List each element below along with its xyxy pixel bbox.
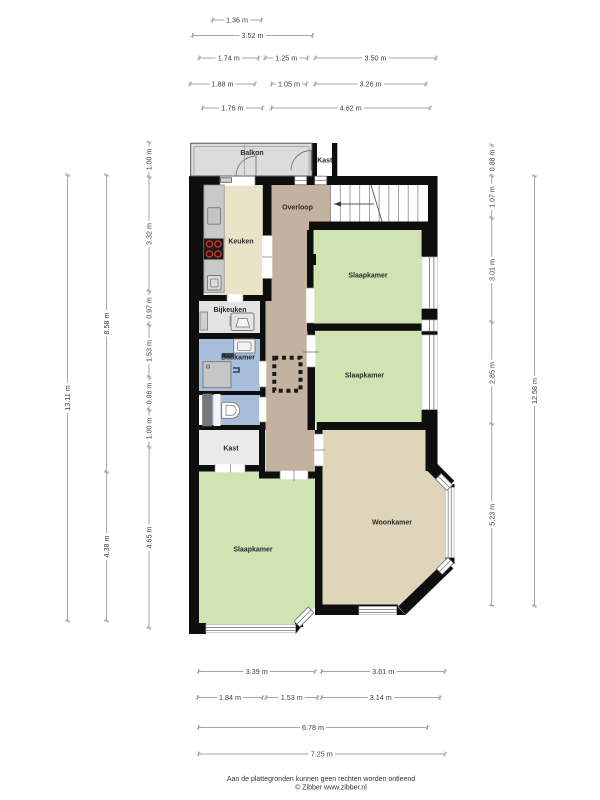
svg-text:0.97 m: 0.97 m [147,297,154,319]
svg-text:1.07 m: 1.07 m [489,186,496,208]
svg-text:3.39 m: 3.39 m [246,667,268,676]
svg-text:12.58 m: 12.58 m [530,378,539,404]
svg-text:1.36 m: 1.36 m [226,16,248,25]
svg-text:2.85 m: 2.85 m [487,362,496,384]
svg-text:1.00 m: 1.00 m [147,149,154,171]
svg-text:0.96 m: 0.96 m [147,383,154,405]
svg-text:1.00 m: 1.00 m [147,418,154,440]
svg-text:Kast: Kast [317,158,333,165]
svg-text:1.53 m: 1.53 m [145,340,154,362]
svg-text:3.52 m: 3.52 m [242,31,264,40]
svg-text:3.61 m: 3.61 m [372,667,394,676]
svg-text:3.50 m: 3.50 m [365,54,387,63]
svg-text:4.38 m: 4.38 m [102,536,111,558]
svg-text:3.14 m: 3.14 m [370,693,392,702]
svg-text:1.05 m: 1.05 m [278,80,300,89]
svg-text:Slaapkamer: Slaapkamer [233,546,273,553]
svg-text:3.26 m: 3.26 m [360,80,382,89]
svg-text:4.62 m: 4.62 m [340,104,362,113]
svg-text:Badkamer: Badkamer [221,354,255,361]
svg-text:Bijkeuken: Bijkeuken [213,307,246,314]
svg-text:Slaapkamer: Slaapkamer [345,372,385,379]
svg-text:Slaapkamer: Slaapkamer [348,272,388,279]
svg-text:3.32 m: 3.32 m [145,223,154,245]
svg-text:1.74 m: 1.74 m [218,54,240,63]
svg-text:Keuken: Keuken [228,238,253,245]
svg-text:4.65 m: 4.65 m [145,527,154,549]
svg-text:1.76 m: 1.76 m [222,104,244,113]
svg-text:7.25 m: 7.25 m [311,750,333,759]
svg-text:1.88 m: 1.88 m [212,80,234,89]
svg-text:Overloop: Overloop [282,204,313,211]
svg-text:6.78 m: 6.78 m [302,723,324,732]
svg-text:1.53 m: 1.53 m [281,693,303,702]
svg-text:0.88 m: 0.88 m [489,150,496,172]
svg-text:13.11 m: 13.11 m [63,385,72,410]
svg-text:5.23 m: 5.23 m [487,504,496,526]
svg-text:1.25 m: 1.25 m [275,54,297,63]
svg-text:Aan de plattegronden kunnen ge: Aan de plattegronden kunnen geen rechten… [227,776,415,783]
svg-text:Woonkamer: Woonkamer [372,519,412,526]
svg-text:© Zibber www.zibber.nl: © Zibber www.zibber.nl [295,784,367,792]
svg-text:Kast: Kast [223,445,239,452]
svg-text:Balkon: Balkon [240,150,263,157]
svg-text:8.58 m: 8.58 m [102,313,111,335]
svg-text:3.01 m: 3.01 m [487,259,496,281]
svg-text:1.84 m: 1.84 m [219,693,241,702]
